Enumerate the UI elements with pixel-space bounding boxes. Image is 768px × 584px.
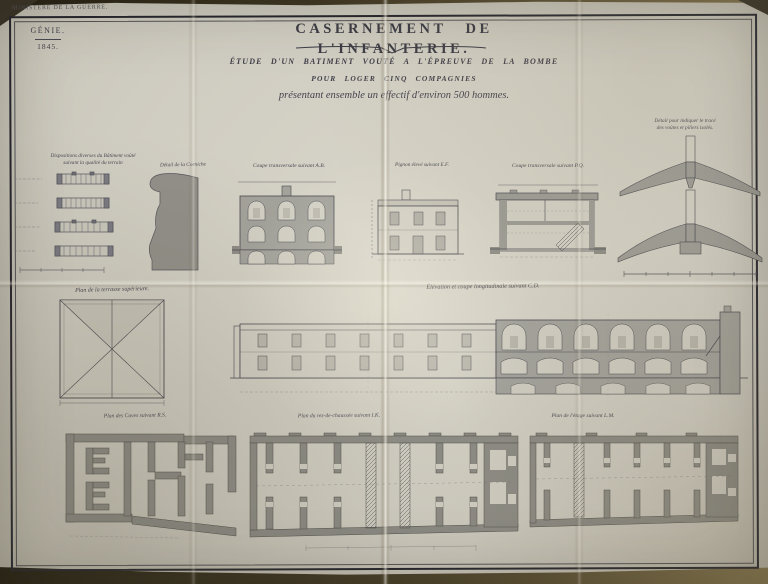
caption-vault-detail: Détail pour indiquer le tracé des voûtes… [610, 118, 760, 132]
year-label: 1845. [22, 42, 74, 52]
caption-coupe-ab: Coupe transversale suivant A.B. [236, 163, 342, 171]
subtitle-line-2: POUR LOGER CINQ COMPAGNIES [264, 74, 524, 84]
vault-pillar-detail-drawing [616, 134, 764, 282]
caption-pignon: Pignon élevé suivant E.F. [376, 162, 468, 169]
caption-upper-plan: Plan de l'étage suivant L.M. [516, 413, 650, 421]
long-section-drawing [228, 296, 752, 412]
coupe-ab-drawing [232, 180, 342, 274]
coupe-pq-drawing [490, 183, 606, 277]
corps-year-block: GÉNIE. 1845. [22, 26, 74, 52]
caption-cornice-detail: Détail de la Corniche [140, 161, 226, 170]
corps-underline [35, 39, 61, 40]
cornice-detail-drawing [140, 170, 206, 274]
pignon-elevation-drawing [368, 188, 468, 268]
photograph-of-plan-sheet: MINISTÈRE DE LA GUERRE. GÉNIE. 1845. CAS… [0, 0, 768, 584]
ministry-heading: MINISTÈRE DE LA GUERRE. [12, 4, 108, 13]
subtitle-line-1: ÉTUDE D'UN BATIMENT VOUTÉ A L'ÉPREUVE DE… [214, 57, 574, 68]
caption-coupe-pq: Coupe transversale suivant P.Q. [492, 163, 604, 171]
dispositions-strips-drawing [12, 170, 124, 276]
subtitle-line-3: présentant ensemble un effectif d'enviro… [244, 89, 544, 103]
caves-plan-drawing [60, 424, 240, 542]
upper-floor-plan-drawing [526, 424, 746, 536]
caption-ground-plan: Plan du rez-de-chaussée suivant I.K. [256, 412, 422, 421]
corps-label: GÉNIE. [22, 26, 74, 37]
terrace-plan-drawing [54, 294, 172, 408]
title-flourish-rule [296, 44, 486, 56]
caption-dispositions: Dispositions diverses du Bâtiment voûté … [38, 153, 148, 167]
ground-floor-plan-drawing [246, 424, 524, 558]
